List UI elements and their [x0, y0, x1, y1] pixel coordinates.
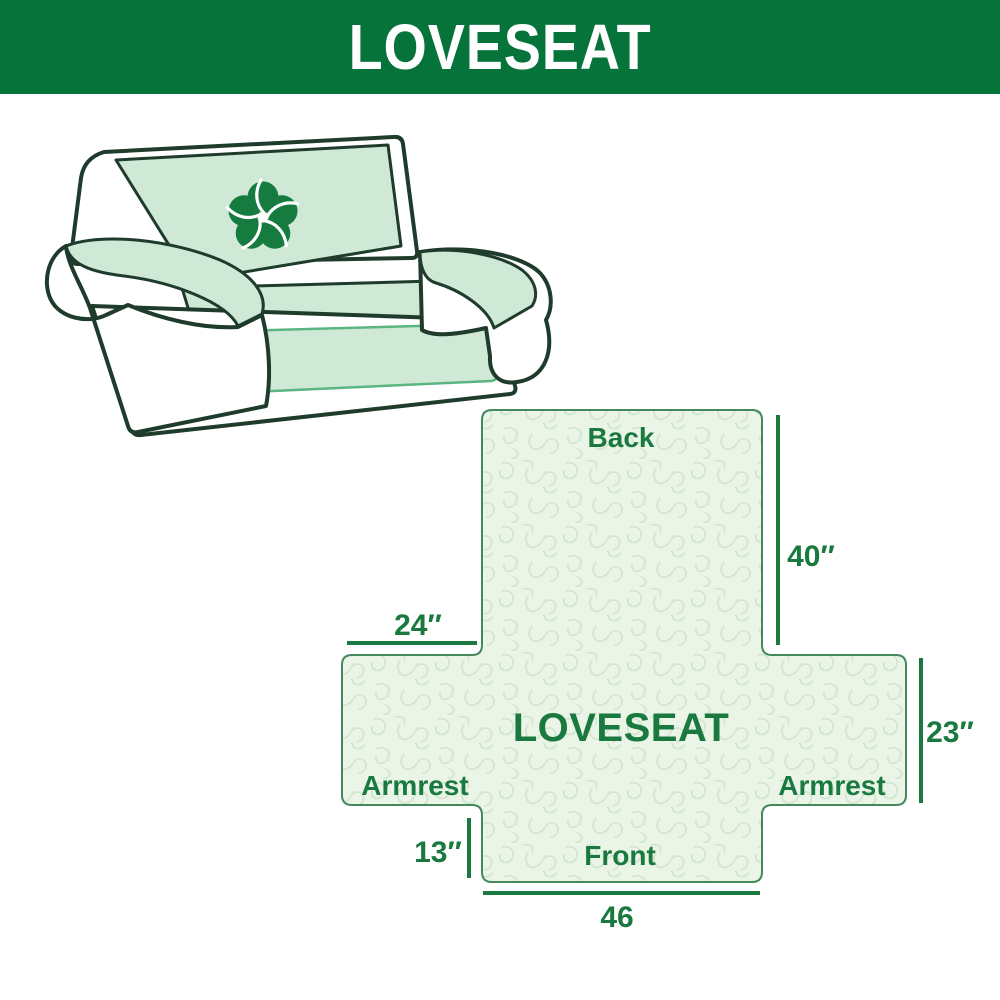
front-skirt-dimension: 13″ [414, 838, 462, 868]
diagram-center-label: LOVESEAT [513, 708, 730, 748]
diagram-shape-svg [330, 395, 990, 955]
page-title: LOVESEAT [349, 15, 652, 79]
front-section-label: Front [584, 842, 656, 870]
armrest-width-dimension: 24″ [394, 611, 442, 641]
armrest-right-label: Armrest [778, 772, 885, 800]
title-banner: LOVESEAT [0, 0, 1000, 94]
page: LOVESEAT [0, 0, 1000, 1000]
armrest-left-label: Armrest [361, 772, 468, 800]
front-width-dimension: 46 [600, 903, 633, 933]
back-section-label: Back [588, 424, 655, 452]
cover-outline-shape [342, 410, 906, 882]
back-height-dimension: 40″ [787, 542, 835, 572]
armrest-height-dimension: 23″ [926, 718, 974, 748]
cover-dimension-diagram: Back 40″ 24″ LOVESEAT Armrest Armrest 23… [330, 395, 990, 955]
